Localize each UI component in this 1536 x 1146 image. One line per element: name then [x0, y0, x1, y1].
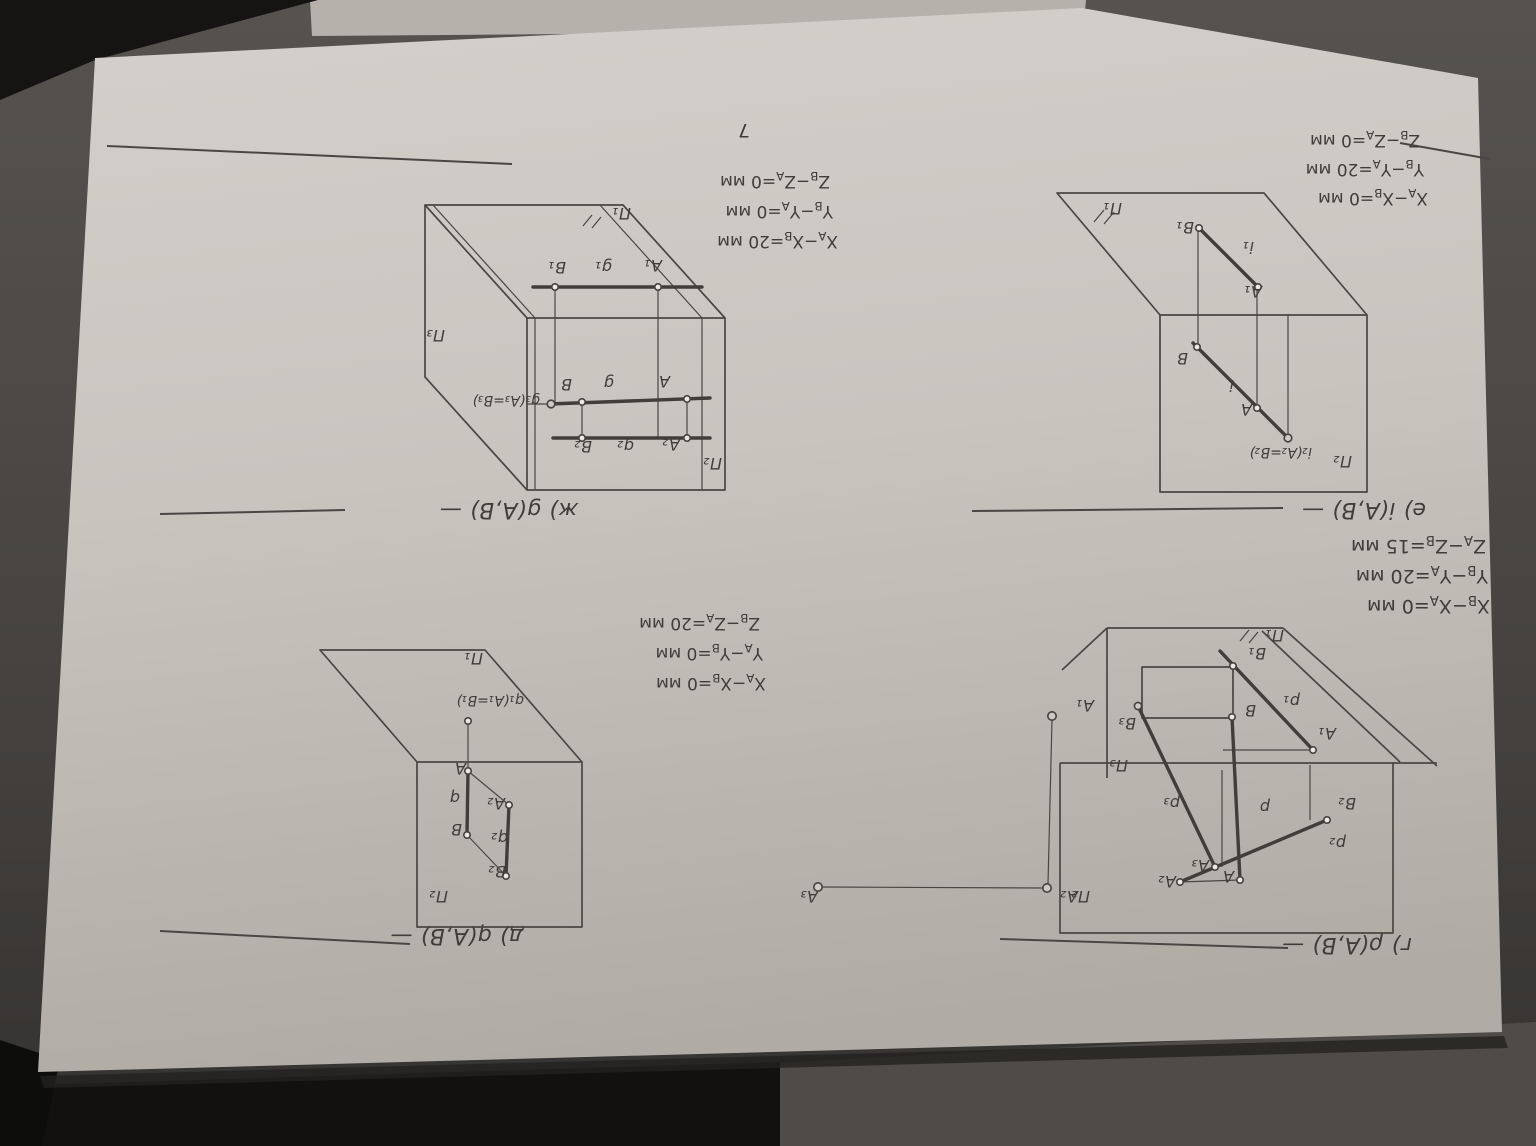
pi1-label: П₁ — [1266, 626, 1284, 645]
task-d-conditions: XA−XB=0 мм YA−YB=0 мм ZB−ZA=20 мм — [639, 611, 766, 693]
point-B: B — [1177, 349, 1188, 368]
point-B: B — [451, 820, 462, 839]
point-A: A — [659, 372, 671, 391]
task-zh-title: ж) g(A,B) — — [439, 497, 579, 522]
point-A1: A₁ — [1319, 724, 1337, 743]
task-e-title: е) i(A,B) — — [1302, 497, 1426, 522]
point-B2: B₂ — [574, 437, 592, 456]
task-g-title: г) ρ(A,B) — — [1282, 932, 1412, 957]
line-g2: g₂ — [617, 437, 634, 456]
point-A: A — [455, 759, 467, 778]
line-p3: p₃ — [1163, 794, 1181, 813]
point-B1: B₁ — [1177, 218, 1194, 237]
segment-q — [467, 771, 468, 835]
point-g3: g₃(A₃=B₃) — [472, 392, 540, 408]
pi2-label: П₂ — [1333, 452, 1352, 471]
point-A: A — [1223, 867, 1235, 886]
point-i2: i₂(A₂=B₂) — [1249, 444, 1312, 460]
paper — [38, 8, 1502, 1072]
point-A: A — [1241, 400, 1253, 419]
line-p2: p₂ — [1329, 834, 1347, 853]
axis-point-A1: A₁ — [1077, 696, 1095, 715]
point-B3: B₃ — [1119, 714, 1136, 733]
axis-point-A3: A₃ — [801, 887, 819, 906]
line-i: i — [1229, 376, 1234, 395]
point-A3: A₃ — [1192, 856, 1210, 875]
line-g1: g₁ — [595, 258, 612, 277]
point-B1: B₁ — [1249, 644, 1266, 663]
task-e-conditions: XA−XB=0 мм YB−YA=20 мм ZB−ZA=0 мм — [1306, 128, 1428, 208]
pi1-label: П₁ — [1104, 199, 1122, 218]
page-number: 7 — [738, 119, 750, 141]
pi1-label: П₁ — [465, 649, 483, 668]
pi1-label: П₁ — [613, 204, 631, 223]
task-g-conditions: XB−XA=0 мм YB−YA=20 мм ZA−ZB=15 мм — [1351, 532, 1490, 617]
point-B1: B₁ — [549, 258, 566, 277]
pi3-label: П₃ — [1110, 756, 1128, 775]
point-A2: A₂ — [662, 435, 681, 454]
axis-point-A2: A₂ — [1060, 887, 1079, 906]
point-q1: q₁(A₁=B₁) — [456, 692, 524, 708]
point-B: B — [561, 375, 572, 394]
point-B2: B₂ — [488, 862, 506, 881]
point-A2: A₂ — [487, 794, 506, 813]
line-p1: p₁ — [1283, 692, 1301, 711]
point-A1: A₁ — [1245, 282, 1263, 301]
line-g: g — [604, 374, 614, 393]
line-p: p — [1260, 798, 1271, 817]
point-B2: B₂ — [1338, 794, 1356, 813]
line-i1: i₁ — [1243, 238, 1254, 257]
worksheet-photo-svg: 7 г) ρ(A,B) — д) q(A,B) — е) i(A,B) — ж)… — [0, 0, 1536, 1146]
task-zh-conditions: XA−XB=20 мм YB−YA=0 мм ZB−ZA=0 мм — [717, 169, 838, 251]
paper-sheet — [38, 8, 1508, 1088]
point-B: B — [1245, 701, 1256, 720]
line-q: q — [450, 789, 460, 808]
pi3-label: П₃ — [427, 326, 445, 345]
photo-of-worksheet: 7 г) ρ(A,B) — д) q(A,B) — е) i(A,B) — ж)… — [0, 0, 1536, 1146]
point-A2: A₂ — [1158, 872, 1177, 891]
pi2-label: П₂ — [429, 887, 448, 906]
line-q2: q₂ — [491, 829, 508, 848]
pi2-label: П₂ — [703, 454, 722, 473]
point-A1: A₁ — [645, 256, 663, 275]
